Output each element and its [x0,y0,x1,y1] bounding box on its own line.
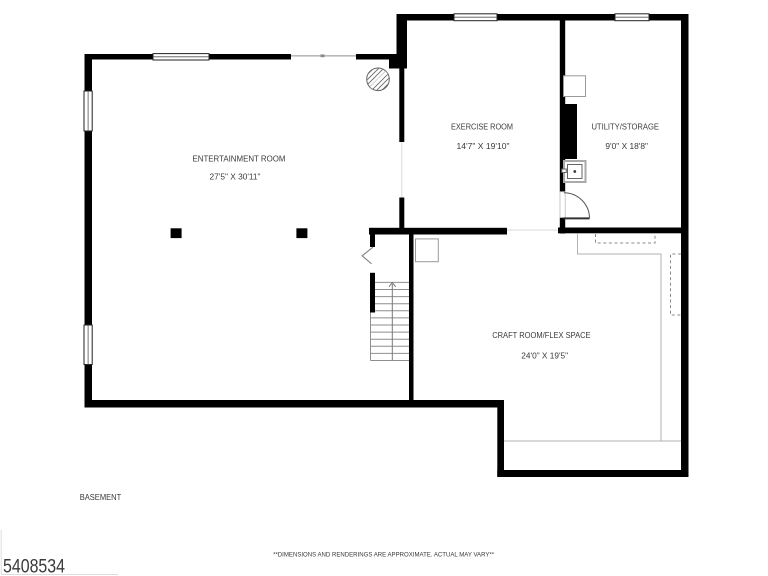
svg-text:**DIMENSIONS AND RENDERINGS AR: **DIMENSIONS AND RENDERINGS ARE APPROXIM… [273,551,494,558]
svg-text:ENTERTAINMENT ROOM: ENTERTAINMENT ROOM [193,154,286,164]
svg-text:9'0" X 18'8": 9'0" X 18'8" [605,141,648,151]
svg-text:CRAFT ROOM/FLEX SPACE: CRAFT ROOM/FLEX SPACE [492,330,591,340]
svg-text:27'5" X 30'11": 27'5" X 30'11" [210,172,261,182]
svg-text:24'0" X 19'5": 24'0" X 19'5" [521,351,568,361]
svg-text:5408534: 5408534 [3,555,65,576]
svg-text:14'7" X 19'10": 14'7" X 19'10" [457,141,510,151]
svg-text:UTILITY/STORAGE: UTILITY/STORAGE [591,122,659,132]
svg-text:BASEMENT: BASEMENT [80,492,122,502]
svg-text:EXERCISE ROOM: EXERCISE ROOM [451,122,513,132]
